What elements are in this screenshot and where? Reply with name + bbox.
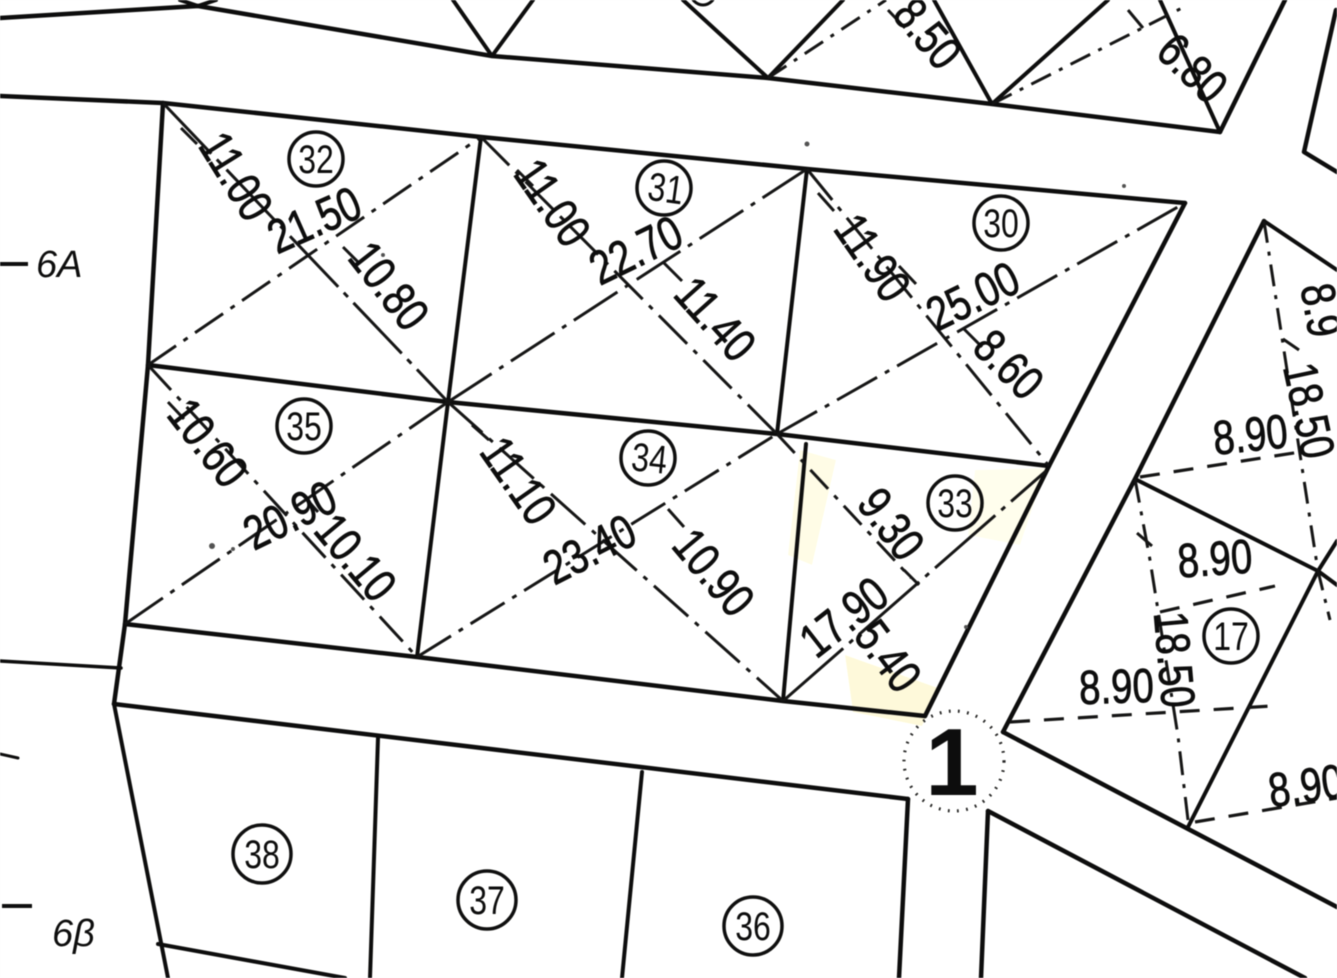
svg-text:32: 32 bbox=[298, 137, 334, 182]
svg-text:35: 35 bbox=[286, 404, 322, 449]
svg-text:8.90: 8.90 bbox=[1078, 660, 1155, 716]
svg-text:37: 37 bbox=[469, 878, 505, 923]
svg-text:6β: 6β bbox=[52, 913, 95, 955]
svg-text:17: 17 bbox=[1213, 614, 1249, 659]
svg-text:31: 31 bbox=[645, 163, 687, 213]
svg-text:6A: 6A bbox=[36, 244, 82, 286]
svg-text:34: 34 bbox=[629, 434, 669, 483]
svg-text:8.90: 8.90 bbox=[1176, 531, 1254, 589]
svg-text:36: 36 bbox=[735, 904, 771, 949]
svg-text:8.90: 8.90 bbox=[1265, 755, 1337, 818]
svg-text:38: 38 bbox=[244, 832, 280, 877]
svg-text:8.90: 8.90 bbox=[1210, 405, 1290, 466]
svg-text:1: 1 bbox=[925, 709, 978, 816]
svg-text:30: 30 bbox=[983, 201, 1019, 246]
svg-text:33: 33 bbox=[937, 481, 973, 526]
